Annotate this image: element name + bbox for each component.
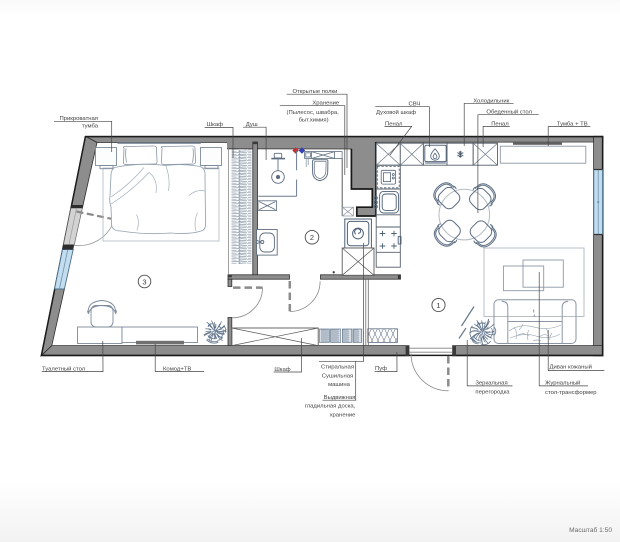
svg-text:Масштаб 1:50: Масштаб 1:50 xyxy=(569,526,612,534)
svg-text:Диван кожаный: Диван кожаный xyxy=(550,364,592,371)
svg-text:перегородка: перегородка xyxy=(475,390,510,396)
svg-text:Открытые полки: Открытые полки xyxy=(293,89,338,95)
svg-text:1: 1 xyxy=(436,301,440,310)
svg-text:Пенал: Пенал xyxy=(385,121,403,127)
svg-text:Духовой шкаф: Духовой шкаф xyxy=(376,109,416,116)
svg-text:Холодильник: Холодильник xyxy=(473,98,509,104)
svg-text:Шкаф: Шкаф xyxy=(274,367,290,373)
svg-text:тумба: тумба xyxy=(82,124,99,130)
svg-text:Журнальный: Журнальный xyxy=(545,379,580,386)
svg-text:(Пылесос, швабра,: (Пылесос, швабра, xyxy=(287,110,340,116)
svg-text:Пенал: Пенал xyxy=(491,121,509,127)
svg-text:Обеденный стол: Обеденный стол xyxy=(486,109,532,116)
svg-text:гладильная доска,: гладильная доска, xyxy=(305,404,356,410)
svg-text:Сушильная: Сушильная xyxy=(322,373,353,379)
svg-text:хранение: хранение xyxy=(330,412,357,418)
svg-text:машина: машина xyxy=(328,382,351,388)
svg-text:Туалетный стол: Туалетный стол xyxy=(42,365,86,372)
svg-text:Хранение: Хранение xyxy=(312,100,340,106)
svg-text:Прикроватная: Прикроватная xyxy=(59,116,98,122)
svg-text:Пуф: Пуф xyxy=(375,366,387,372)
svg-text:Тумба + ТВ: Тумба + ТВ xyxy=(557,122,588,128)
svg-text:Душ: Душ xyxy=(246,122,258,128)
svg-text:Выдвижная: Выдвижная xyxy=(324,395,356,401)
svg-text:быт.химия): быт.химия) xyxy=(299,117,329,123)
svg-text:стол-трансформер: стол-трансформер xyxy=(545,390,597,396)
svg-text:Шкаф: Шкаф xyxy=(207,122,223,128)
svg-text:СВЧ: СВЧ xyxy=(408,101,420,107)
svg-text:Стиральная: Стиральная xyxy=(321,365,354,371)
svg-text:Комод+ТВ: Комод+ТВ xyxy=(163,366,191,372)
svg-text:Зеркальная: Зеркальная xyxy=(475,380,507,386)
